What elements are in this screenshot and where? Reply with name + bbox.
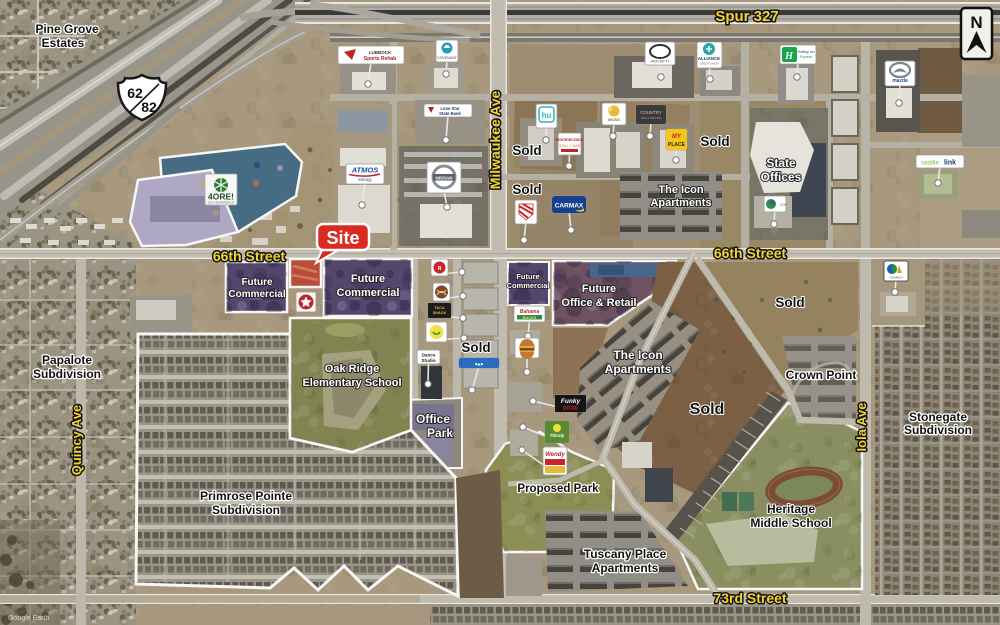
- svg-text:66th Street: 66th Street: [714, 245, 787, 261]
- svg-text:INFINITI: INFINITI: [650, 59, 669, 64]
- svg-text:Spur 327: Spur 327: [715, 8, 778, 25]
- svg-text:The Icon: The Icon: [658, 184, 704, 196]
- svg-text:Middle School: Middle School: [750, 516, 831, 530]
- svg-text:ALLIANCE: ALLIANCE: [698, 56, 720, 61]
- svg-text:Thirsty: Thirsty: [550, 433, 565, 438]
- svg-text:73rd Street: 73rd Street: [713, 590, 786, 606]
- svg-text:BoomerJack: BoomerJack: [556, 137, 584, 142]
- svg-text:LUBBOCK: LUBBOCK: [369, 50, 392, 55]
- svg-text:CHURCH: CHURCH: [890, 276, 903, 280]
- svg-text:Offices: Offices: [761, 170, 802, 184]
- svg-text:Studio: Studio: [421, 358, 435, 363]
- svg-text:Subdivision: Subdivision: [212, 503, 280, 517]
- svg-text:Sold: Sold: [512, 143, 541, 158]
- svg-text:Commercial: Commercial: [337, 287, 400, 299]
- svg-text:Site: Site: [326, 228, 359, 248]
- svg-text:Apartments: Apartments: [592, 561, 659, 575]
- svg-text:State: State: [766, 156, 796, 170]
- svg-text:Funky: Funky: [561, 398, 581, 405]
- svg-text:COVENANT: COVENANT: [437, 56, 458, 60]
- svg-text:Future: Future: [582, 283, 616, 295]
- svg-text:Future: Future: [241, 277, 273, 288]
- svg-text:CARMAX: CARMAX: [555, 203, 584, 210]
- svg-text:Milwaukee Ave: Milwaukee Ave: [487, 91, 503, 190]
- svg-text:DOOR: DOOR: [563, 406, 578, 412]
- svg-text:Future: Future: [351, 273, 385, 285]
- svg-text:Elementary School: Elementary School: [302, 377, 401, 389]
- svg-text:82: 82: [141, 99, 157, 115]
- svg-text:Subdivision: Subdivision: [33, 367, 101, 381]
- svg-text:Park: Park: [427, 426, 453, 440]
- svg-text:Stonegate: Stonegate: [909, 410, 967, 424]
- svg-text:Commercial: Commercial: [228, 289, 285, 300]
- svg-text:Sold: Sold: [775, 295, 804, 310]
- svg-text:Office & Retail: Office & Retail: [561, 297, 636, 309]
- svg-text:Proposed Park: Proposed Park: [517, 483, 599, 495]
- svg-text:Apartments: Apartments: [650, 197, 711, 209]
- svg-text:Sports Rehab: Sports Rehab: [364, 56, 397, 62]
- svg-text:ATMOS: ATMOS: [351, 166, 379, 175]
- svg-text:PLACE: PLACE: [668, 142, 686, 148]
- svg-text:BUCKS: BUCKS: [523, 316, 537, 320]
- svg-text:Primrose Pointe: Primrose Pointe: [200, 489, 292, 503]
- svg-text:Pine Grove: Pine Grove: [35, 22, 99, 36]
- svg-text:The Icon: The Icon: [613, 348, 662, 362]
- svg-text:Sold: Sold: [700, 134, 729, 149]
- svg-text:66th Street: 66th Street: [213, 248, 286, 264]
- svg-text:Sold: Sold: [461, 340, 490, 355]
- svg-text:MOSS: MOSS: [608, 117, 620, 122]
- svg-text:CREDIT UNION: CREDIT UNION: [700, 62, 719, 66]
- svg-text:Sold: Sold: [690, 401, 725, 418]
- svg-text:GRILL + BAR: GRILL + BAR: [559, 144, 581, 148]
- svg-text:Estates: Estates: [42, 36, 85, 50]
- svg-text:Crown Point: Crown Point: [786, 368, 857, 382]
- svg-text:Future: Future: [516, 272, 539, 281]
- svg-text:Dance: Dance: [422, 353, 436, 358]
- svg-text:MY: MY: [672, 134, 682, 140]
- svg-text:energy: energy: [358, 177, 373, 182]
- svg-text:Commercial: Commercial: [507, 281, 550, 290]
- svg-text:hu: hu: [542, 111, 552, 120]
- svg-text:Google Earth: Google Earth: [8, 615, 49, 622]
- svg-text:COUNTRY: COUNTRY: [640, 110, 662, 115]
- svg-text:●▴●: ●▴●: [475, 362, 484, 368]
- svg-text:Holiday Inn: Holiday Inn: [798, 50, 815, 54]
- svg-text:Tuscany Place: Tuscany Place: [584, 547, 667, 561]
- svg-text:INN & SUITES: INN & SUITES: [641, 116, 661, 120]
- svg-text:saddle: saddle: [921, 161, 939, 167]
- svg-text:TACA: TACA: [434, 306, 445, 310]
- svg-text:State Bank: State Bank: [439, 111, 461, 116]
- svg-text:Subdivision: Subdivision: [904, 423, 972, 437]
- svg-text:Apartments: Apartments: [605, 362, 672, 376]
- svg-text:H: H: [784, 51, 794, 62]
- svg-text:Iola Ave: Iola Ave: [854, 403, 869, 452]
- svg-text:Bahama: Bahama: [520, 309, 540, 315]
- svg-text:Office: Office: [416, 412, 450, 426]
- svg-text:SHACK: SHACK: [433, 311, 447, 315]
- svg-text:NISSAN: NISSAN: [435, 176, 452, 181]
- svg-text:Express: Express: [800, 55, 813, 59]
- svg-text:COV: COV: [780, 203, 788, 207]
- svg-text:Heritage: Heritage: [767, 502, 815, 516]
- svg-text:Wendy: Wendy: [545, 452, 565, 458]
- svg-text:link: link: [944, 160, 956, 167]
- svg-text:Oak Ridge: Oak Ridge: [325, 363, 379, 375]
- svg-text:mazda: mazda: [892, 78, 908, 84]
- svg-text:R: R: [438, 266, 442, 272]
- svg-text:N: N: [970, 13, 982, 32]
- svg-text:Papalote: Papalote: [42, 353, 92, 367]
- svg-text:Quincy Ave: Quincy Ave: [69, 405, 84, 476]
- svg-text:Sold: Sold: [512, 182, 541, 197]
